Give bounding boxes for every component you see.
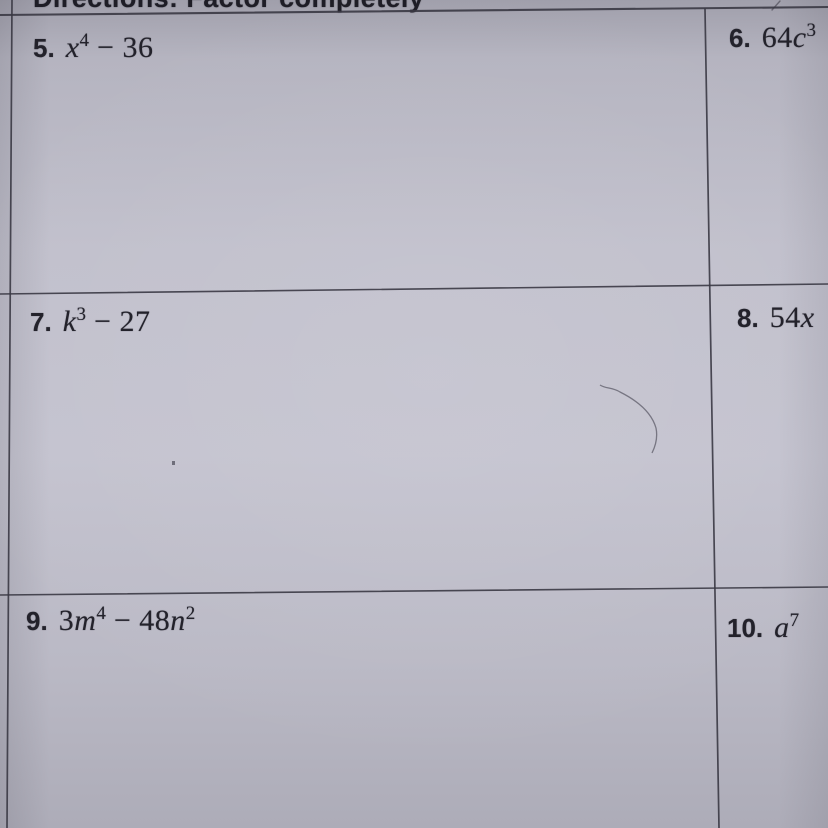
exponent: 3: [807, 20, 817, 41]
operator: −: [89, 31, 122, 64]
exponent: 7: [790, 610, 800, 631]
variable: k: [63, 305, 77, 338]
problem-number: 8.: [737, 303, 759, 333]
variable: a: [774, 611, 790, 644]
exponent: 3: [77, 304, 87, 325]
problem-number: 10.: [727, 613, 763, 643]
problem-expression: 54x: [770, 301, 815, 334]
exponent: 2: [186, 603, 196, 624]
problem-expression: x4 − 36: [66, 31, 154, 64]
table-column-divider: [705, 9, 719, 828]
problem-number: 9.: [26, 606, 48, 636]
problem-cell-6: 6.64c3: [729, 20, 816, 55]
variable: m: [74, 604, 96, 637]
hair-artifact: [600, 385, 657, 453]
problem-expression: 3m4 − 48n2: [59, 604, 196, 637]
coefficient: 54: [770, 301, 801, 334]
problem-cell-5: 5.x4 − 36: [33, 30, 153, 65]
table-left-border: [7, 0, 12, 828]
variable: x: [801, 301, 815, 334]
problem-number: 6.: [729, 23, 751, 53]
table-grid-lines: [0, 0, 828, 828]
stray-pen-mark: [772, 1, 780, 10]
problem-number: 5.: [33, 33, 55, 63]
problem-cell-9: 9.3m4 − 48n2: [26, 603, 195, 638]
worksheet-photo: Directions: Factor completely 5.x4 − 36 …: [0, 0, 828, 828]
speck-artifact: [172, 461, 175, 465]
exponent: 4: [96, 603, 106, 624]
problem-number: 7.: [30, 307, 52, 337]
operator: −: [106, 604, 139, 637]
variable: n: [170, 604, 186, 637]
table-row-divider-1: [0, 284, 828, 294]
operator: −: [86, 305, 119, 338]
variable: c: [793, 21, 807, 54]
problem-expression: a7: [774, 611, 799, 644]
directions-text: Directions: Factor completely: [33, 0, 424, 14]
problem-cell-8: 8.54x: [737, 301, 815, 335]
coefficient: 48: [139, 604, 170, 637]
problem-expression: k3 − 27: [63, 305, 151, 338]
coefficient: 64: [762, 21, 793, 54]
variable: x: [66, 31, 80, 64]
exponent: 4: [80, 30, 90, 51]
problem-cell-10: 10.a7: [727, 610, 799, 645]
problem-cell-7: 7.k3 − 27: [30, 304, 150, 339]
problem-expression: 64c3: [762, 21, 816, 54]
coefficient: 36: [122, 31, 153, 64]
coefficient: 27: [119, 305, 150, 338]
table-row-divider-2: [0, 587, 828, 595]
coefficient: 3: [59, 604, 75, 637]
